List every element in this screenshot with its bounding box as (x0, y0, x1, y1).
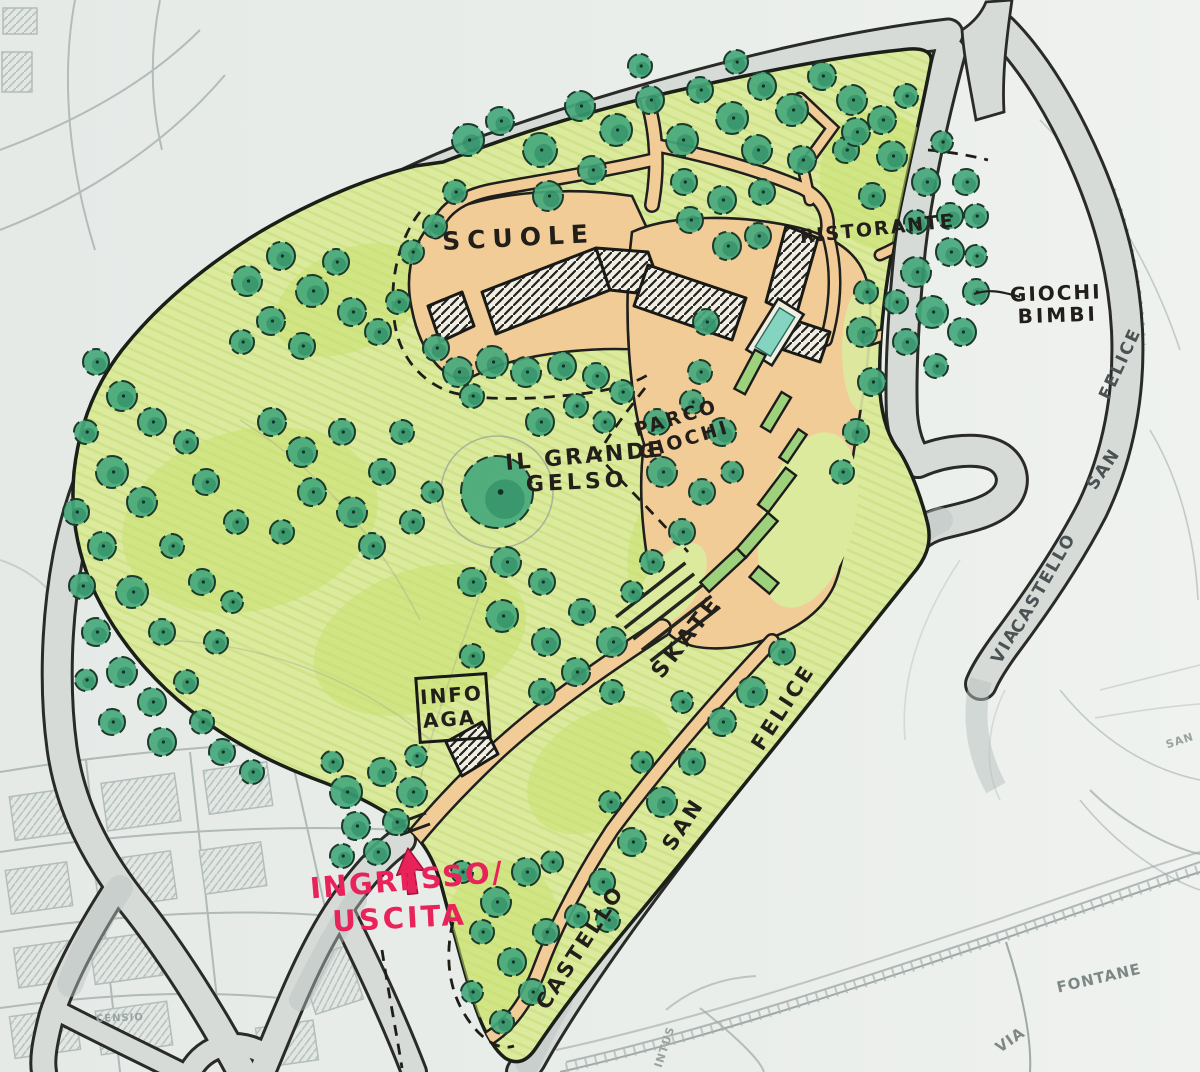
tree (476, 346, 508, 378)
tree (597, 627, 627, 657)
tree (868, 106, 896, 134)
tree (532, 628, 560, 656)
tree (600, 114, 632, 146)
tree (671, 691, 693, 713)
tree (745, 223, 771, 249)
tree (423, 335, 449, 361)
tree (289, 333, 315, 359)
tree (953, 169, 979, 195)
tree (830, 460, 854, 484)
tree (578, 156, 606, 184)
tree (948, 318, 976, 346)
tree (230, 330, 254, 354)
tree (647, 787, 677, 817)
tree (776, 94, 808, 126)
tree (96, 456, 128, 488)
tree (174, 670, 198, 694)
tree (296, 275, 328, 307)
tree (127, 487, 157, 517)
tree (713, 232, 741, 260)
tree (583, 363, 609, 389)
tree (769, 639, 795, 665)
tree (160, 534, 184, 558)
tree (858, 368, 886, 396)
tree (631, 751, 653, 773)
tree (593, 411, 615, 433)
tree (460, 644, 484, 668)
tree (842, 118, 870, 146)
tree (83, 349, 109, 375)
tree (924, 354, 948, 378)
tree (677, 207, 703, 233)
tree (486, 107, 514, 135)
tree (742, 135, 772, 165)
tree (912, 168, 940, 196)
tree (640, 550, 664, 574)
tree (443, 180, 467, 204)
tree (232, 266, 262, 296)
tree (190, 710, 214, 734)
label-info-aga-line2: AGA (422, 705, 477, 733)
tree (107, 657, 137, 687)
label-censio-basemap: CENSIO (96, 1012, 144, 1025)
tree (400, 510, 424, 534)
tree (359, 533, 385, 559)
tree (894, 84, 918, 108)
tree (397, 777, 427, 807)
tree (490, 1010, 514, 1034)
tree (600, 680, 624, 704)
tree (193, 469, 219, 495)
tree (541, 851, 563, 873)
tree (936, 238, 964, 266)
label-giochi-bimbi-line2: BIMBI (1017, 302, 1098, 329)
tree (564, 394, 588, 418)
tree (69, 573, 95, 599)
tree (965, 245, 987, 267)
tree (788, 146, 816, 174)
tree (321, 751, 343, 773)
tree (498, 948, 526, 976)
tree (562, 658, 590, 686)
tree (138, 688, 166, 716)
tree (258, 408, 286, 436)
tree (74, 420, 98, 444)
tree (679, 749, 705, 775)
tree (621, 581, 643, 603)
tree (99, 709, 125, 735)
tree (400, 240, 424, 264)
tree (174, 430, 198, 454)
tree (748, 72, 776, 100)
tree (383, 809, 409, 835)
tree (687, 77, 713, 103)
tree (368, 758, 396, 786)
tree (628, 54, 652, 78)
tree (458, 568, 486, 596)
tree (452, 124, 484, 156)
tree (716, 102, 748, 134)
tree (599, 791, 621, 813)
tree (491, 547, 521, 577)
label-il-grande-gelso-line2: GELSO (525, 467, 628, 497)
tree (267, 242, 295, 270)
tree (671, 169, 697, 195)
tree (386, 290, 410, 314)
tree (270, 520, 294, 544)
tree (565, 91, 595, 121)
tree (364, 839, 390, 865)
tree (610, 380, 634, 404)
tree (88, 532, 116, 560)
tree (240, 760, 264, 784)
tree (693, 309, 719, 335)
tree (107, 381, 137, 411)
tree (808, 62, 836, 90)
tree (737, 677, 767, 707)
tree (63, 499, 89, 525)
tree (859, 183, 885, 209)
tree (511, 357, 541, 387)
tree (116, 576, 148, 608)
tree (189, 569, 215, 595)
tree (529, 679, 555, 705)
tree (721, 461, 743, 483)
tree (689, 479, 715, 505)
tree (481, 887, 511, 917)
tree (329, 419, 355, 445)
tree (337, 497, 367, 527)
tree (148, 728, 176, 756)
tree (460, 384, 484, 408)
tree (724, 50, 748, 74)
tree (669, 519, 695, 545)
park-plan-canvas: SCUOLERISTORANTEGIOCHIBIMBIPARCOGIOCHIIL… (0, 0, 1200, 1072)
tree (204, 630, 228, 654)
tree (636, 86, 664, 114)
tree (298, 478, 326, 506)
tree (901, 257, 931, 287)
tree (666, 124, 698, 156)
tree (533, 919, 559, 945)
tree (529, 569, 555, 595)
tree (569, 599, 595, 625)
tree (884, 290, 908, 314)
tree (443, 357, 473, 387)
tree (82, 618, 110, 646)
tree (461, 981, 483, 1003)
tree (149, 619, 175, 645)
tree (877, 141, 907, 171)
park-plan-screenshot: SCUOLERISTORANTEGIOCHIBIMBIPARCOGIOCHIIL… (0, 0, 1200, 1072)
tree (708, 708, 736, 736)
tree (931, 131, 953, 153)
tree (847, 317, 877, 347)
tree (221, 591, 243, 613)
tree (843, 419, 869, 445)
tree (338, 298, 366, 326)
tree (916, 296, 948, 328)
tree (708, 186, 736, 214)
tree (342, 812, 370, 840)
tree (330, 844, 354, 868)
tree (837, 85, 867, 115)
tree (224, 510, 248, 534)
tree (854, 280, 878, 304)
tree (365, 319, 391, 345)
tree (287, 437, 317, 467)
tree (330, 776, 362, 808)
tree (323, 249, 349, 275)
tree (75, 669, 97, 691)
tree (688, 360, 712, 384)
tree (390, 420, 414, 444)
tree (138, 408, 166, 436)
tree (470, 920, 494, 944)
tree (512, 858, 540, 886)
tree (523, 133, 557, 167)
tree (533, 181, 563, 211)
tree (526, 408, 554, 436)
tree (749, 179, 775, 205)
tree (405, 745, 427, 767)
tree (421, 481, 443, 503)
tree (618, 828, 646, 856)
label-uscita: USCITA (331, 898, 467, 939)
tree (964, 204, 988, 228)
tree (548, 352, 576, 380)
tree (209, 739, 235, 765)
tree (369, 459, 395, 485)
tree (893, 329, 919, 355)
tree (257, 307, 285, 335)
tree (486, 600, 518, 632)
